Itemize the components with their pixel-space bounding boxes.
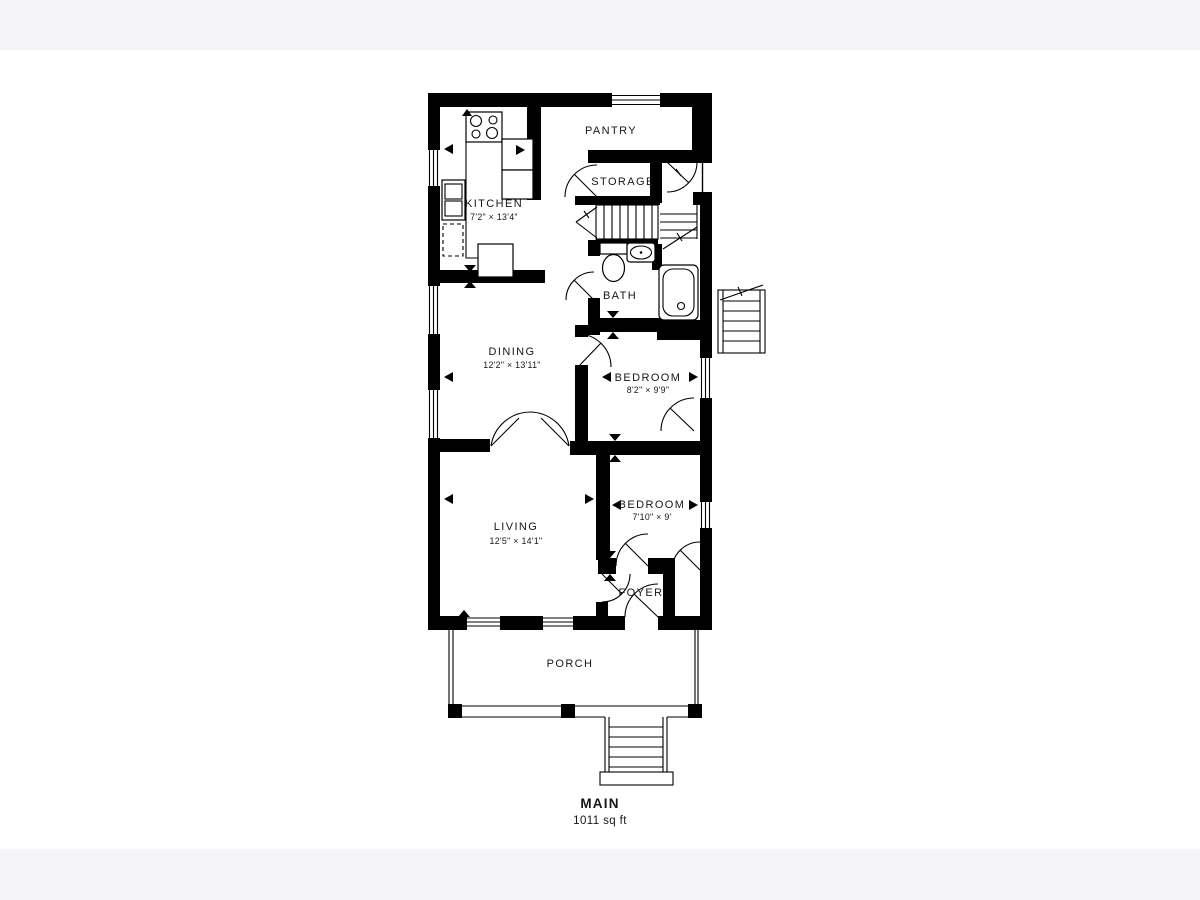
room-label-porch: PORCH: [547, 658, 594, 670]
stove-icon: [466, 112, 502, 142]
porch-outline: [448, 630, 702, 718]
room-label-bath: BATH: [603, 290, 637, 302]
window-kitchen-left: [430, 150, 438, 186]
window-living-bottom-right: [543, 618, 573, 626]
room-dims-kitchen: 7'2" × 13'4": [470, 212, 518, 222]
window-living-bottom-left: [467, 618, 500, 626]
kitchen-island-icon: [478, 244, 513, 277]
bathtub-icon: [659, 265, 698, 320]
floor-plan-image: KITCHEN 7'2" × 13'4" PANTRY STORAGE BATH…: [0, 0, 1200, 900]
window-bedroom1-right: [702, 358, 710, 398]
windows: [430, 96, 710, 627]
dining-living-double-door: [491, 412, 569, 446]
room-label-bedroom1: BEDROOM: [615, 372, 682, 384]
window-bedroom2-right: [702, 502, 710, 528]
bedroom2-closet-door: [672, 542, 700, 570]
back-door: [667, 162, 697, 192]
floor-name-label: MAIN: [580, 796, 619, 811]
kitchen-fixtures: [442, 112, 533, 277]
room-label-dining: DINING: [489, 346, 536, 358]
floor-area-label: 1011 sq ft: [573, 815, 627, 827]
room-dims-living: 12'5" × 14'1": [490, 536, 543, 546]
floor-plan-page: KITCHEN 7'2" × 13'4" PANTRY STORAGE BATH…: [0, 0, 1200, 900]
bedroom2-door: [616, 534, 648, 566]
dishwasher-icon: [443, 224, 463, 256]
window-dining-left-upper: [430, 286, 438, 334]
front-steps: [600, 717, 673, 785]
room-dims-bedroom2: 7'10" × 9': [632, 512, 671, 522]
stairs-interior: [596, 205, 697, 239]
bedroom1-door: [578, 334, 611, 367]
interior-walls: [428, 107, 712, 618]
stairs-exterior-side: [718, 285, 765, 353]
room-label-pantry: PANTRY: [585, 125, 637, 137]
window-pantry-top: [612, 96, 660, 105]
bath-sink-icon: [627, 243, 655, 262]
room-dims-dining: 12'2" × 13'11": [483, 360, 540, 370]
exterior-walls: [428, 93, 712, 630]
room-dims-bedroom1: 8'2" × 9'9": [627, 385, 670, 395]
room-label-foyer: FOYER: [619, 587, 664, 599]
bath-door: [566, 272, 594, 300]
hall-bifold-door: [576, 207, 597, 238]
window-dining-left-lower: [430, 390, 438, 438]
floor-title: MAIN 1011 sq ft: [573, 796, 627, 827]
bedroom1-closet-door: [661, 398, 694, 431]
room-label-storage: STORAGE: [591, 176, 654, 188]
room-label-kitchen: KITCHEN: [465, 198, 523, 210]
bath-fixtures: [600, 243, 698, 320]
kitchen-sink-icon: [442, 180, 465, 220]
room-label-bedroom2: BEDROOM: [619, 499, 686, 511]
room-label-living: LIVING: [494, 521, 538, 533]
toilet-icon: [600, 243, 627, 282]
